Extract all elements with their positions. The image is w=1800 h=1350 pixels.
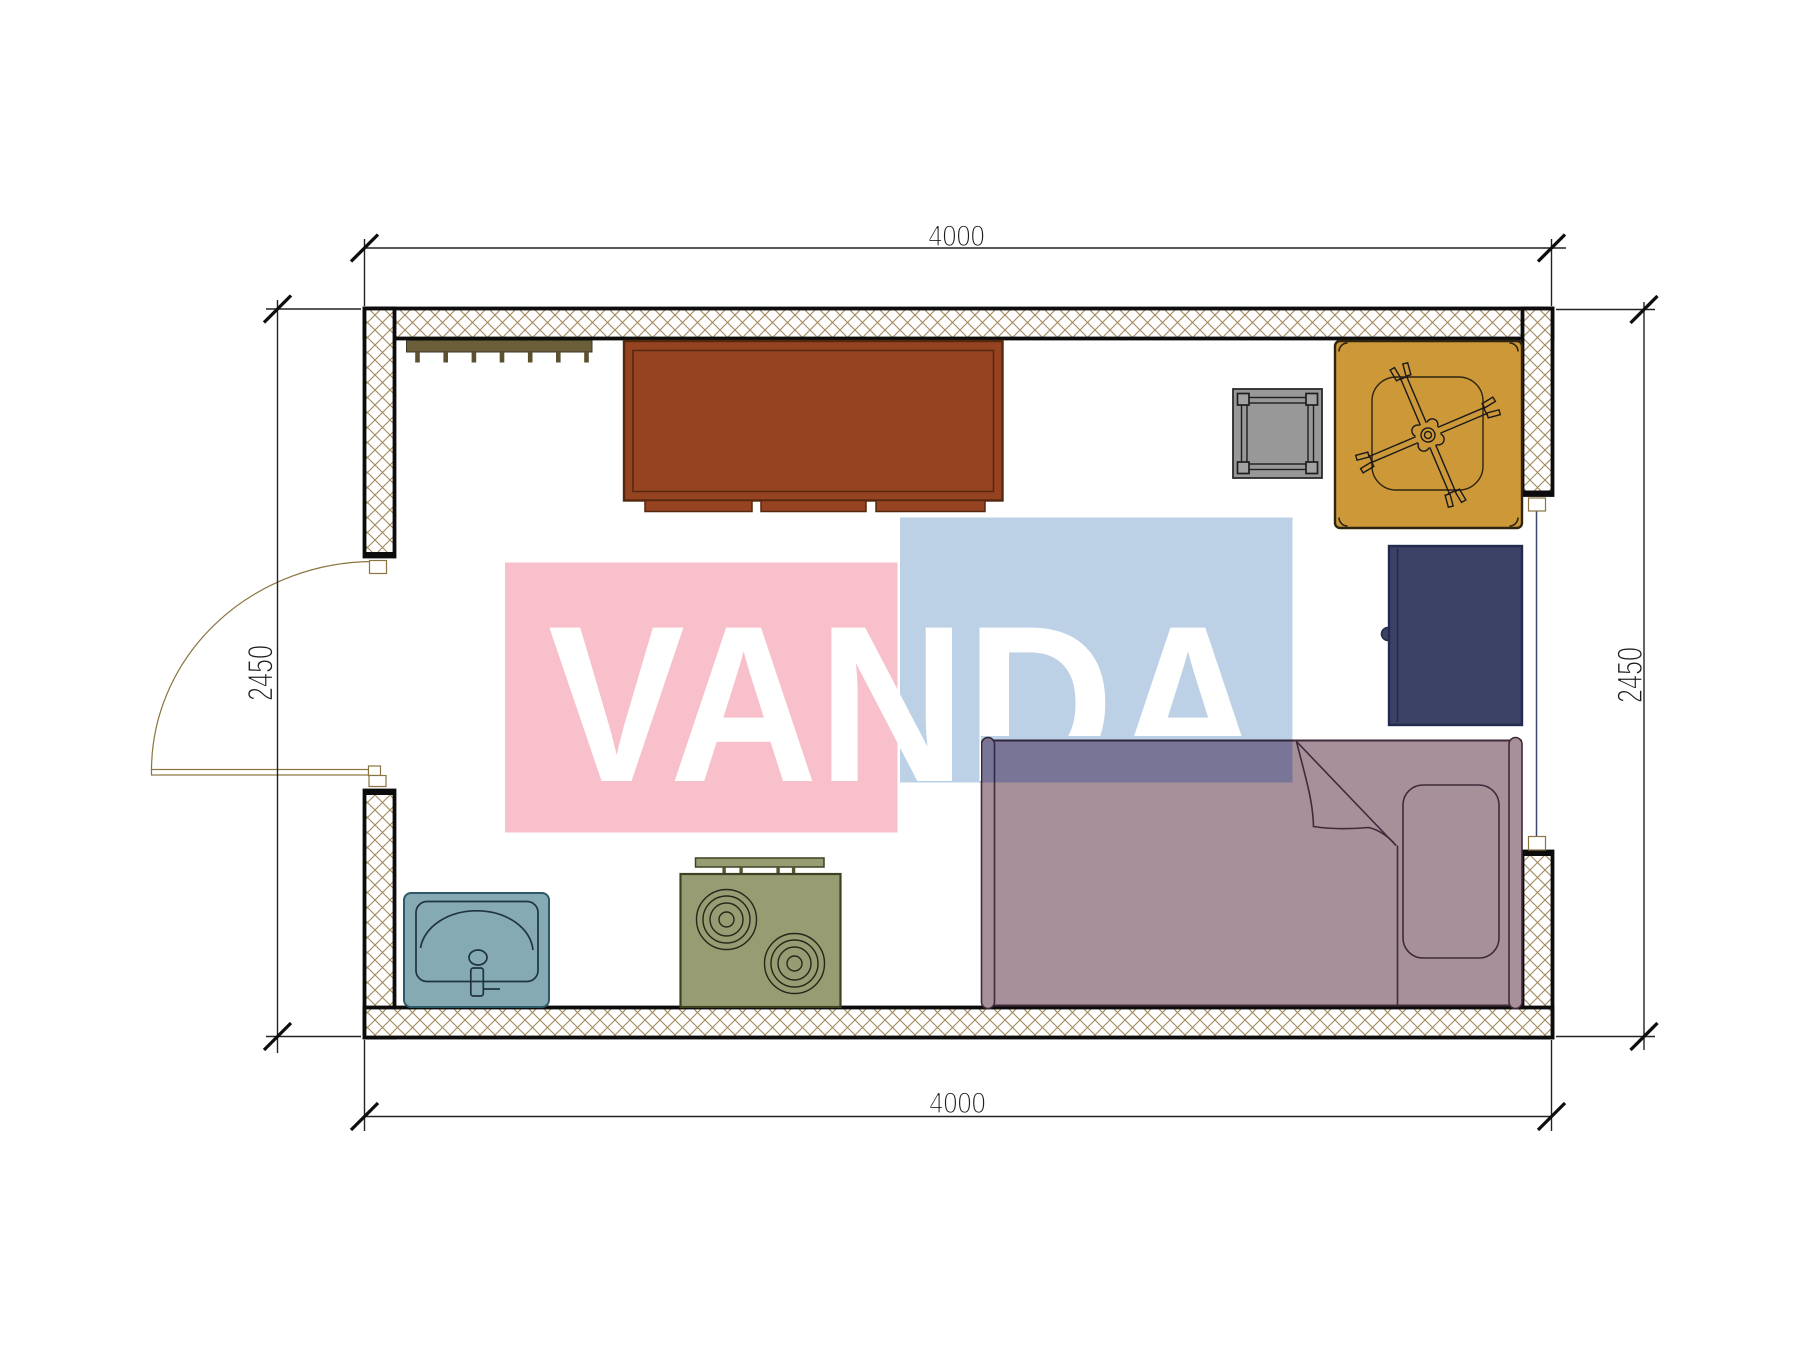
svg-text:2450: 2450	[1611, 647, 1650, 703]
svg-text:4000: 4000	[929, 1086, 985, 1119]
svg-text:2450: 2450	[242, 645, 281, 701]
svg-text:4000: 4000	[928, 219, 984, 252]
